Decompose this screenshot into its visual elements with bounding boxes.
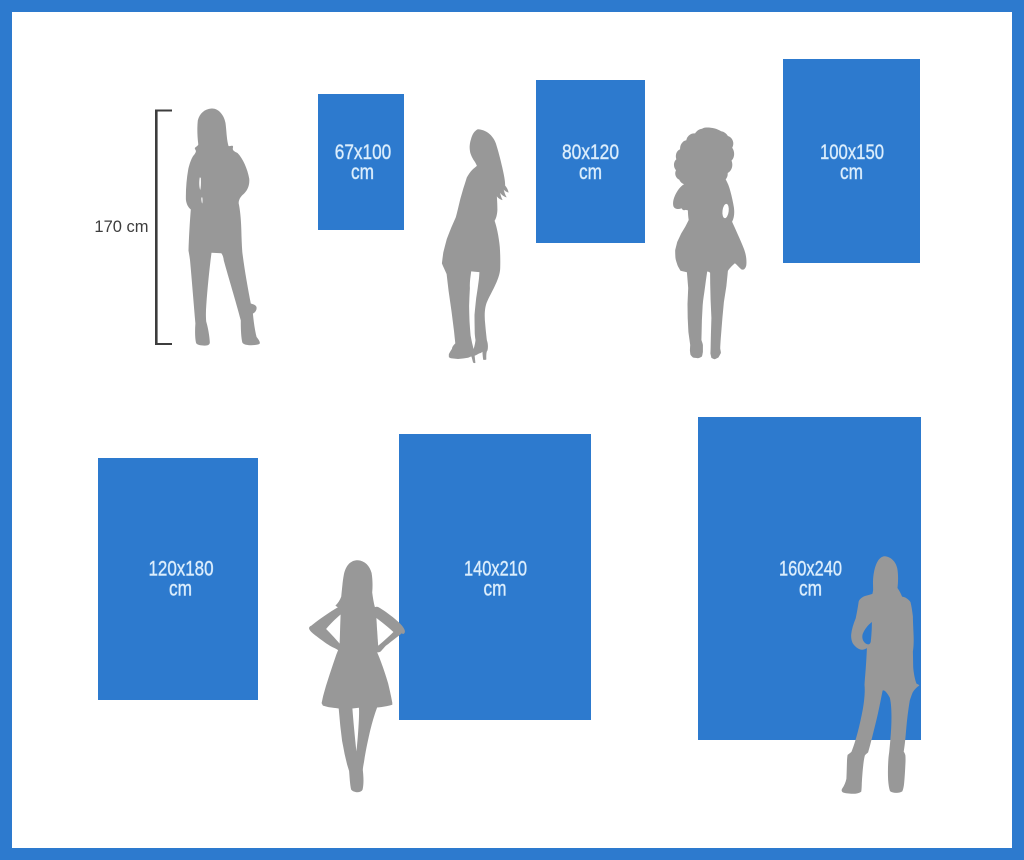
- svg-text:cm: cm: [840, 160, 863, 184]
- svg-text:cm: cm: [484, 577, 507, 601]
- svg-text:cm: cm: [351, 160, 374, 184]
- svg-text:cm: cm: [579, 160, 602, 184]
- svg-text:cm: cm: [799, 577, 822, 601]
- svg-text:170 cm: 170 cm: [94, 218, 148, 236]
- svg-text:cm: cm: [169, 577, 192, 601]
